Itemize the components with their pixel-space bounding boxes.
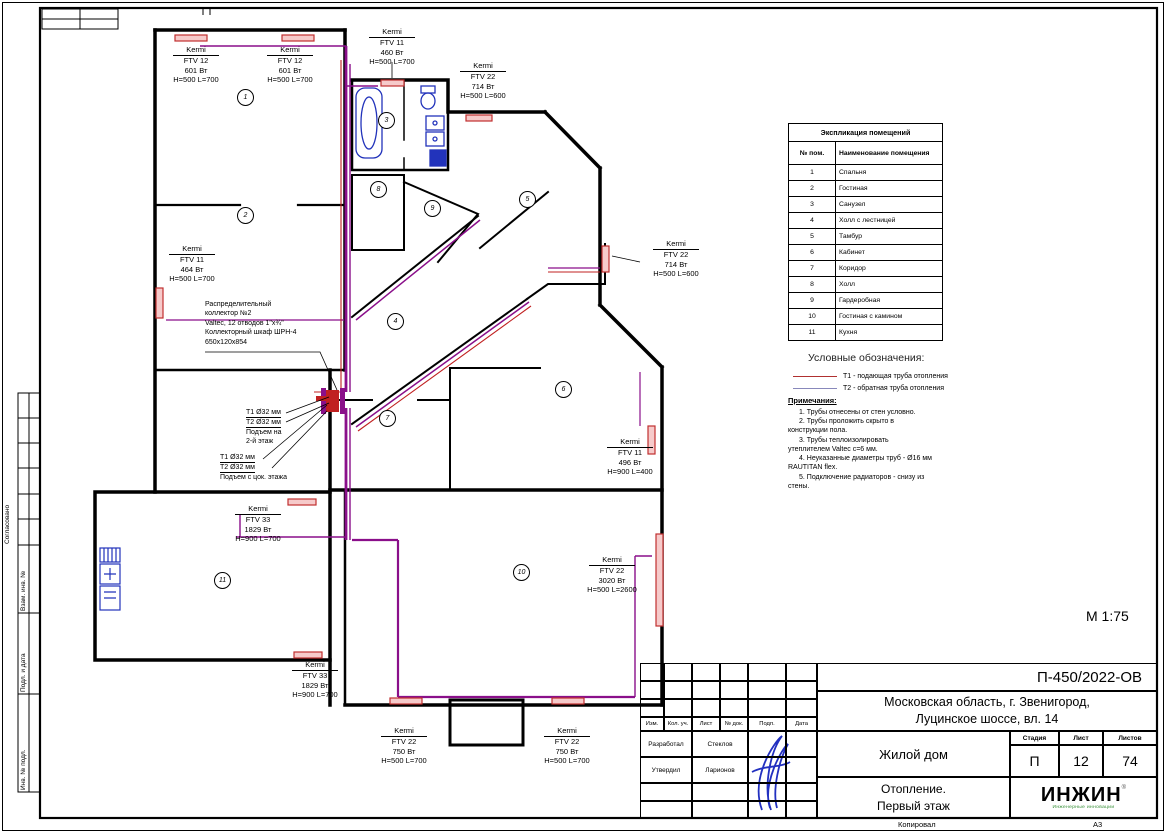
explication-row: 9Гардеробная bbox=[789, 293, 943, 309]
room-name: Кабинет bbox=[836, 245, 943, 261]
radiator-power: 3020 Вт bbox=[557, 576, 667, 585]
pipe-line-sample bbox=[793, 376, 837, 377]
riser-label-line: Т1 Ø32 мм bbox=[220, 453, 287, 463]
note-line: 4. Неуказанные диаметры труб - Ø16 мм bbox=[788, 454, 966, 463]
riser-label-line: Подъем на bbox=[246, 428, 282, 437]
title-block-cell bbox=[640, 783, 692, 801]
radiator-brand: Kermi bbox=[575, 437, 685, 448]
logo-registered-mark: ® bbox=[1122, 785, 1126, 791]
room-number-6: 6 bbox=[555, 381, 572, 398]
legend-item: Т1 - подающая труба отопления bbox=[793, 370, 948, 382]
room-number-4: 4 bbox=[387, 313, 404, 330]
title-block-cell bbox=[692, 663, 720, 681]
stage-label-cell: Стадия bbox=[1010, 731, 1059, 745]
note-line: 5. Подключение радиаторов - снизу из bbox=[788, 473, 966, 482]
note-line: 2. Трубы проложить скрыто в bbox=[788, 417, 966, 426]
radiator-model: FTV 33 bbox=[260, 671, 370, 680]
radiator-brand: Kermi bbox=[260, 660, 370, 671]
room-name: Санузел bbox=[836, 197, 943, 213]
title-block-cell bbox=[786, 783, 817, 801]
title-block-cell bbox=[640, 801, 692, 818]
room-num: 11 bbox=[789, 325, 836, 341]
title-block-cell: Утвердил bbox=[640, 757, 692, 783]
address-line2: Луцинское шоссе, вл. 14 bbox=[916, 711, 1059, 728]
legend-items: Т1 - подающая труба отопленияТ2 - обратн… bbox=[793, 370, 948, 394]
title-block-cell bbox=[692, 681, 720, 699]
room-number-1: 1 bbox=[237, 89, 254, 106]
radiator-model: FTV 11 bbox=[337, 38, 447, 47]
logo-subtitle: Инженерные инновации bbox=[1053, 806, 1115, 811]
room-name: Гостиная bbox=[836, 181, 943, 197]
scale-label: М 1:75 bbox=[1086, 608, 1129, 624]
radiator-model: FTV 12 bbox=[235, 56, 345, 65]
riser-label-line: 2-й этаж bbox=[246, 437, 282, 446]
radiator-size: H=900 L=700 bbox=[203, 534, 313, 543]
title-block-cell bbox=[786, 663, 817, 681]
radiator-label: KermiFTV 331829 ВтH=900 L=700 bbox=[260, 660, 370, 700]
title-block-cell bbox=[786, 757, 817, 783]
pipe-line-sample bbox=[793, 388, 837, 389]
room-number-7: 7 bbox=[379, 410, 396, 427]
radiator-power: 714 Вт bbox=[428, 82, 538, 91]
radiator-label: KermiFTV 11496 ВтH=900 L=400 bbox=[575, 437, 685, 477]
title-block-cell bbox=[748, 663, 786, 681]
title-block-cell bbox=[640, 699, 664, 717]
title-block-cell bbox=[786, 801, 817, 818]
room-name: Тамбур bbox=[836, 229, 943, 245]
sheet-label-cell: Лист bbox=[1059, 731, 1103, 745]
title-block-cell: Лист bbox=[692, 717, 720, 731]
title-block-cell bbox=[720, 663, 748, 681]
radiator-size: H=500 L=700 bbox=[137, 274, 247, 283]
radiator-size: H=900 L=700 bbox=[260, 690, 370, 699]
note-line: RAUTITAN flex. bbox=[788, 463, 966, 472]
explication-row: 1Спальня bbox=[789, 165, 943, 181]
collector-note-line: Коллекторный шкаф ШРН-4 bbox=[205, 328, 296, 337]
title-block-cell: № док. bbox=[720, 717, 748, 731]
title-block-cell: Кол. уч. bbox=[664, 717, 692, 731]
explication-row: 3Санузел bbox=[789, 197, 943, 213]
radiator-size: H=500 L=700 bbox=[349, 756, 459, 765]
radiator-label: KermiFTV 11464 ВтH=500 L=700 bbox=[137, 244, 247, 284]
drawing-title-line1: Отопление. bbox=[881, 781, 946, 797]
room-num: 2 bbox=[789, 181, 836, 197]
title-block-cell: Ларионов bbox=[692, 757, 748, 783]
explication-row: 4Холл с лестницей bbox=[789, 213, 943, 229]
notes-title: Примечания: bbox=[788, 396, 966, 406]
radiator-size: H=500 L=600 bbox=[621, 269, 731, 278]
title-block-cell bbox=[748, 783, 786, 801]
title-block-cell bbox=[720, 681, 748, 699]
title-block-cell: Подп. bbox=[748, 717, 786, 731]
radiator-size: H=900 L=400 bbox=[575, 467, 685, 476]
title-block-cell bbox=[664, 699, 692, 717]
explication-header: Наименование помещения bbox=[836, 142, 943, 165]
radiator-power: 1829 Вт bbox=[203, 525, 313, 534]
room-num: 10 bbox=[789, 309, 836, 325]
explication-row: 11Кухня bbox=[789, 325, 943, 341]
title-block-cell bbox=[720, 699, 748, 717]
note-line: стены. bbox=[788, 482, 966, 491]
explication-row: 2Гостиная bbox=[789, 181, 943, 197]
title-block-cell: Изм. bbox=[640, 717, 664, 731]
paper-format-label: А3 bbox=[1093, 820, 1102, 829]
riser-label: Т1 Ø32 ммТ2 Ø32 ммПодъем с цок. этажа bbox=[220, 453, 287, 482]
collector-note-line: коллектор №2 bbox=[205, 309, 296, 318]
legend-item-label: Т2 - обратная труба отопления bbox=[843, 385, 944, 392]
room-name: Холл с лестницей bbox=[836, 213, 943, 229]
room-num: 1 bbox=[789, 165, 836, 181]
stage-value-cell: П bbox=[1010, 745, 1059, 777]
title-block-cell bbox=[692, 801, 748, 818]
room-number-11: 11 bbox=[214, 572, 231, 589]
radiator-brand: Kermi bbox=[337, 27, 447, 38]
radiator-model: FTV 22 bbox=[557, 566, 667, 575]
title-block-cell bbox=[748, 681, 786, 699]
room-name: Холл bbox=[836, 277, 943, 293]
title-block-cell bbox=[786, 699, 817, 717]
radiator-brand: Kermi bbox=[621, 239, 731, 250]
notes-block: Примечания: 1. Трубы отнесены от стен ус… bbox=[788, 396, 966, 491]
collector-note-line: Valtec, 12 отводов 1"х¾" bbox=[205, 319, 296, 328]
radiator-label: KermiFTV 223020 ВтH=500 L=2600 bbox=[557, 555, 667, 595]
room-number-3: 3 bbox=[378, 112, 395, 129]
title-block-cell bbox=[664, 663, 692, 681]
radiator-power: 460 Вт bbox=[337, 48, 447, 57]
radiator-label: KermiFTV 22714 ВтH=500 L=600 bbox=[621, 239, 731, 279]
title-block-cell: Дата bbox=[786, 717, 817, 731]
title-block-cell bbox=[748, 757, 786, 783]
room-num: 7 bbox=[789, 261, 836, 277]
title-block-cell bbox=[748, 801, 786, 818]
title-block-cell bbox=[692, 699, 720, 717]
radiator-model: FTV 33 bbox=[203, 515, 313, 524]
title-block-cell bbox=[640, 663, 664, 681]
room-number-8: 8 bbox=[370, 181, 387, 198]
strip-section-label: Взам. инв. № bbox=[20, 571, 27, 611]
legend-title: Условные обозначения: bbox=[808, 352, 924, 364]
address-cell: Московская область, г. Звенигород, Луцин… bbox=[817, 691, 1157, 731]
title-block-cell bbox=[640, 681, 664, 699]
explication-row: 10Гостиная с камином bbox=[789, 309, 943, 325]
radiator-size: H=500 L=600 bbox=[428, 91, 538, 100]
radiator-size: H=500 L=700 bbox=[235, 75, 345, 84]
strip-section-label: Инв. № подл. bbox=[20, 750, 27, 791]
copied-by-label: Копировал bbox=[898, 820, 936, 829]
radiator-power: 750 Вт bbox=[512, 747, 622, 756]
explication-row: 5Тамбур bbox=[789, 229, 943, 245]
room-number-2: 2 bbox=[237, 207, 254, 224]
riser-label-line: Т2 Ø32 мм bbox=[246, 418, 282, 428]
room-num: 4 bbox=[789, 213, 836, 229]
collector-note-line: Распределительный bbox=[205, 300, 296, 309]
explication-row: 6Кабинет bbox=[789, 245, 943, 261]
title-block-cell bbox=[748, 699, 786, 717]
radiator-model: FTV 22 bbox=[349, 737, 459, 746]
title-block-cell bbox=[786, 681, 817, 699]
collector-note-line: 650х120х854 bbox=[205, 338, 296, 347]
drawing-title-cell: Отопление. Первый этаж bbox=[817, 777, 1010, 818]
room-num: 3 bbox=[789, 197, 836, 213]
room-number-5: 5 bbox=[519, 191, 536, 208]
radiator-label: KermiFTV 12601 ВтH=500 L=700 bbox=[235, 45, 345, 85]
radiator-model: FTV 22 bbox=[428, 72, 538, 81]
explication-row: 7Коридор bbox=[789, 261, 943, 277]
radiator-power: 750 Вт bbox=[349, 747, 459, 756]
riser-label: Т1 Ø32 ммТ2 Ø32 ммПодъем на2-й этаж bbox=[246, 408, 282, 446]
address-line1: Московская область, г. Звенигород, bbox=[884, 694, 1090, 711]
company-logo: ИНЖИН® Инженерные инновации bbox=[1010, 777, 1157, 818]
radiator-power: 496 Вт bbox=[575, 458, 685, 467]
explication-row: 8Холл bbox=[789, 277, 943, 293]
radiator-brand: Kermi bbox=[235, 45, 345, 56]
strip-section-label: Подл. и дата bbox=[20, 653, 27, 692]
radiator-model: FTV 11 bbox=[137, 255, 247, 264]
logo-text: ИНЖИН bbox=[1041, 784, 1122, 806]
riser-label-line: Т2 Ø32 мм bbox=[220, 463, 287, 473]
radiator-label: KermiFTV 22750 ВтH=500 L=700 bbox=[512, 726, 622, 766]
drawing-title-line2: Первый этаж bbox=[877, 798, 950, 814]
explication-header: № пом. bbox=[789, 142, 836, 165]
radiator-power: 714 Вт bbox=[621, 260, 731, 269]
room-num: 9 bbox=[789, 293, 836, 309]
radiator-brand: Kermi bbox=[203, 504, 313, 515]
radiator-size: H=500 L=700 bbox=[512, 756, 622, 765]
radiator-size: H=500 L=2600 bbox=[557, 585, 667, 594]
note-line: 3. Трубы теплоизолировать bbox=[788, 436, 966, 445]
room-num: 8 bbox=[789, 277, 836, 293]
legend-item: Т2 - обратная труба отопления bbox=[793, 382, 948, 394]
radiator-model: FTV 22 bbox=[621, 250, 731, 259]
room-name: Кухня bbox=[836, 325, 943, 341]
riser-label-line: Подъем с цок. этажа bbox=[220, 473, 287, 482]
radiator-power: 464 Вт bbox=[137, 265, 247, 274]
explication-title: Экспликация помещений bbox=[789, 124, 943, 142]
doc-number-cell: П-450/2022-ОВ bbox=[817, 663, 1157, 691]
radiator-model: FTV 11 bbox=[575, 448, 685, 457]
object-name-cell: Жилой дом bbox=[817, 731, 1010, 777]
title-block-cell: Стеклов bbox=[692, 731, 748, 757]
drawing-sheet: KermiFTV 12601 ВтH=500 L=700KermiFTV 126… bbox=[0, 0, 1166, 833]
explication-table: Экспликация помещений№ пом.Наименование … bbox=[788, 123, 943, 341]
radiator-power: 1829 Вт bbox=[260, 681, 370, 690]
title-block-cell bbox=[786, 731, 817, 757]
radiator-power: 601 Вт bbox=[235, 66, 345, 75]
radiator-brand: Kermi bbox=[557, 555, 667, 566]
room-num: 6 bbox=[789, 245, 836, 261]
room-name: Коридор bbox=[836, 261, 943, 277]
radiator-label: KermiFTV 22714 ВтH=500 L=600 bbox=[428, 61, 538, 101]
radiator-brand: Kermi bbox=[137, 244, 247, 255]
legend-item-label: Т1 - подающая труба отопления bbox=[843, 373, 948, 380]
riser-label-line: Т1 Ø32 мм bbox=[246, 408, 282, 418]
collector-note: Распределительныйколлектор №2Valtec, 12 … bbox=[205, 300, 296, 347]
approved-stamp-label: Согласовано bbox=[4, 505, 11, 544]
title-block-cell: Разработал bbox=[640, 731, 692, 757]
sheets-label-cell: Листов bbox=[1103, 731, 1157, 745]
note-line: конструкции пола. bbox=[788, 426, 966, 435]
room-number-9: 9 bbox=[424, 200, 441, 217]
radiator-label: KermiFTV 22750 ВтH=500 L=700 bbox=[349, 726, 459, 766]
room-num: 5 bbox=[789, 229, 836, 245]
note-line: утеплителем Valtec с=6 мм. bbox=[788, 445, 966, 454]
room-number-10: 10 bbox=[513, 564, 530, 581]
note-line: 1. Трубы отнесены от стен условно. bbox=[788, 408, 966, 417]
radiator-model: FTV 22 bbox=[512, 737, 622, 746]
title-block-cell bbox=[748, 731, 786, 757]
title-block-cell bbox=[692, 783, 748, 801]
room-name: Гостиная с камином bbox=[836, 309, 943, 325]
radiator-label: KermiFTV 331829 ВтH=900 L=700 bbox=[203, 504, 313, 544]
room-name: Гардеробная bbox=[836, 293, 943, 309]
sheets-total-cell: 74 bbox=[1103, 745, 1157, 777]
title-block-cell bbox=[664, 681, 692, 699]
radiator-brand: Kermi bbox=[512, 726, 622, 737]
room-name: Спальня bbox=[836, 165, 943, 181]
radiator-brand: Kermi bbox=[349, 726, 459, 737]
radiator-brand: Kermi bbox=[428, 61, 538, 72]
sheet-number-cell: 12 bbox=[1059, 745, 1103, 777]
